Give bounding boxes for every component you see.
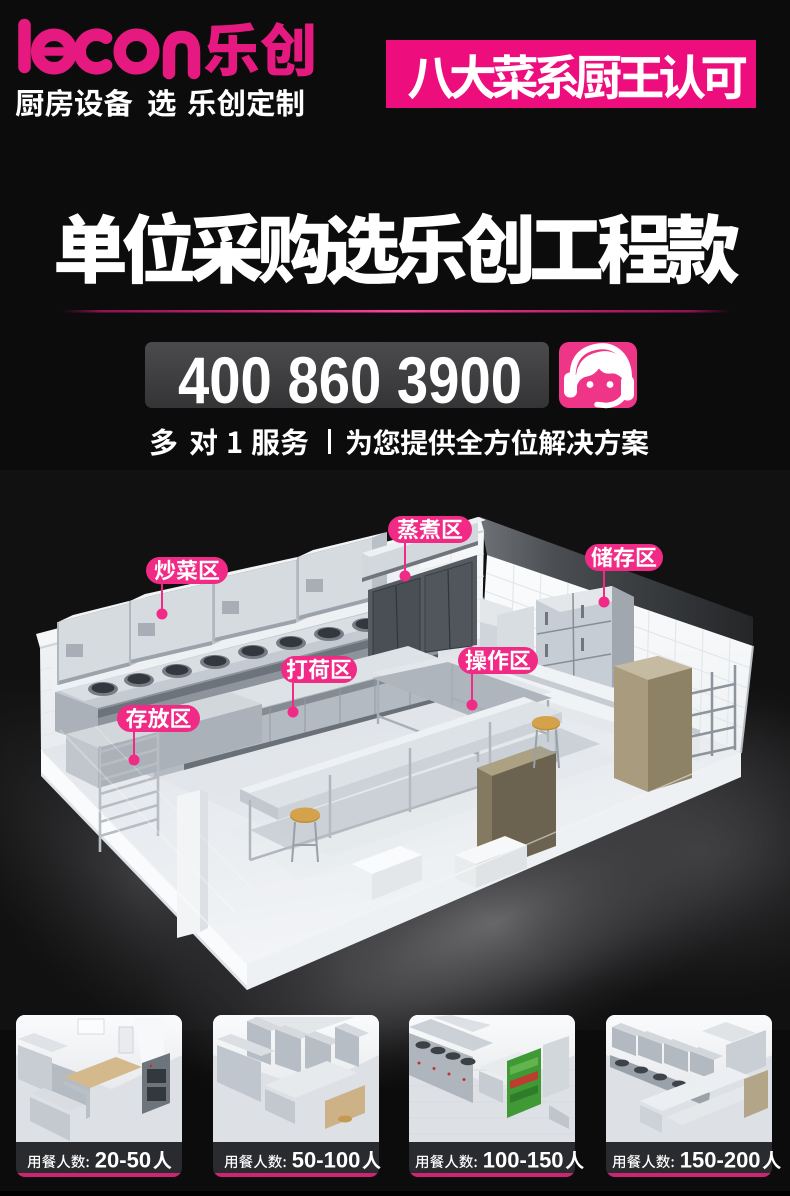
svg-text:20-50: 20-50 [95, 1148, 151, 1173]
svg-text:400 860 3900: 400 860 3900 [178, 343, 522, 417]
svg-text:100-150: 100-150 [483, 1148, 564, 1173]
svg-text:50-100: 50-100 [292, 1148, 361, 1173]
svg-text:150-200: 150-200 [680, 1148, 761, 1173]
